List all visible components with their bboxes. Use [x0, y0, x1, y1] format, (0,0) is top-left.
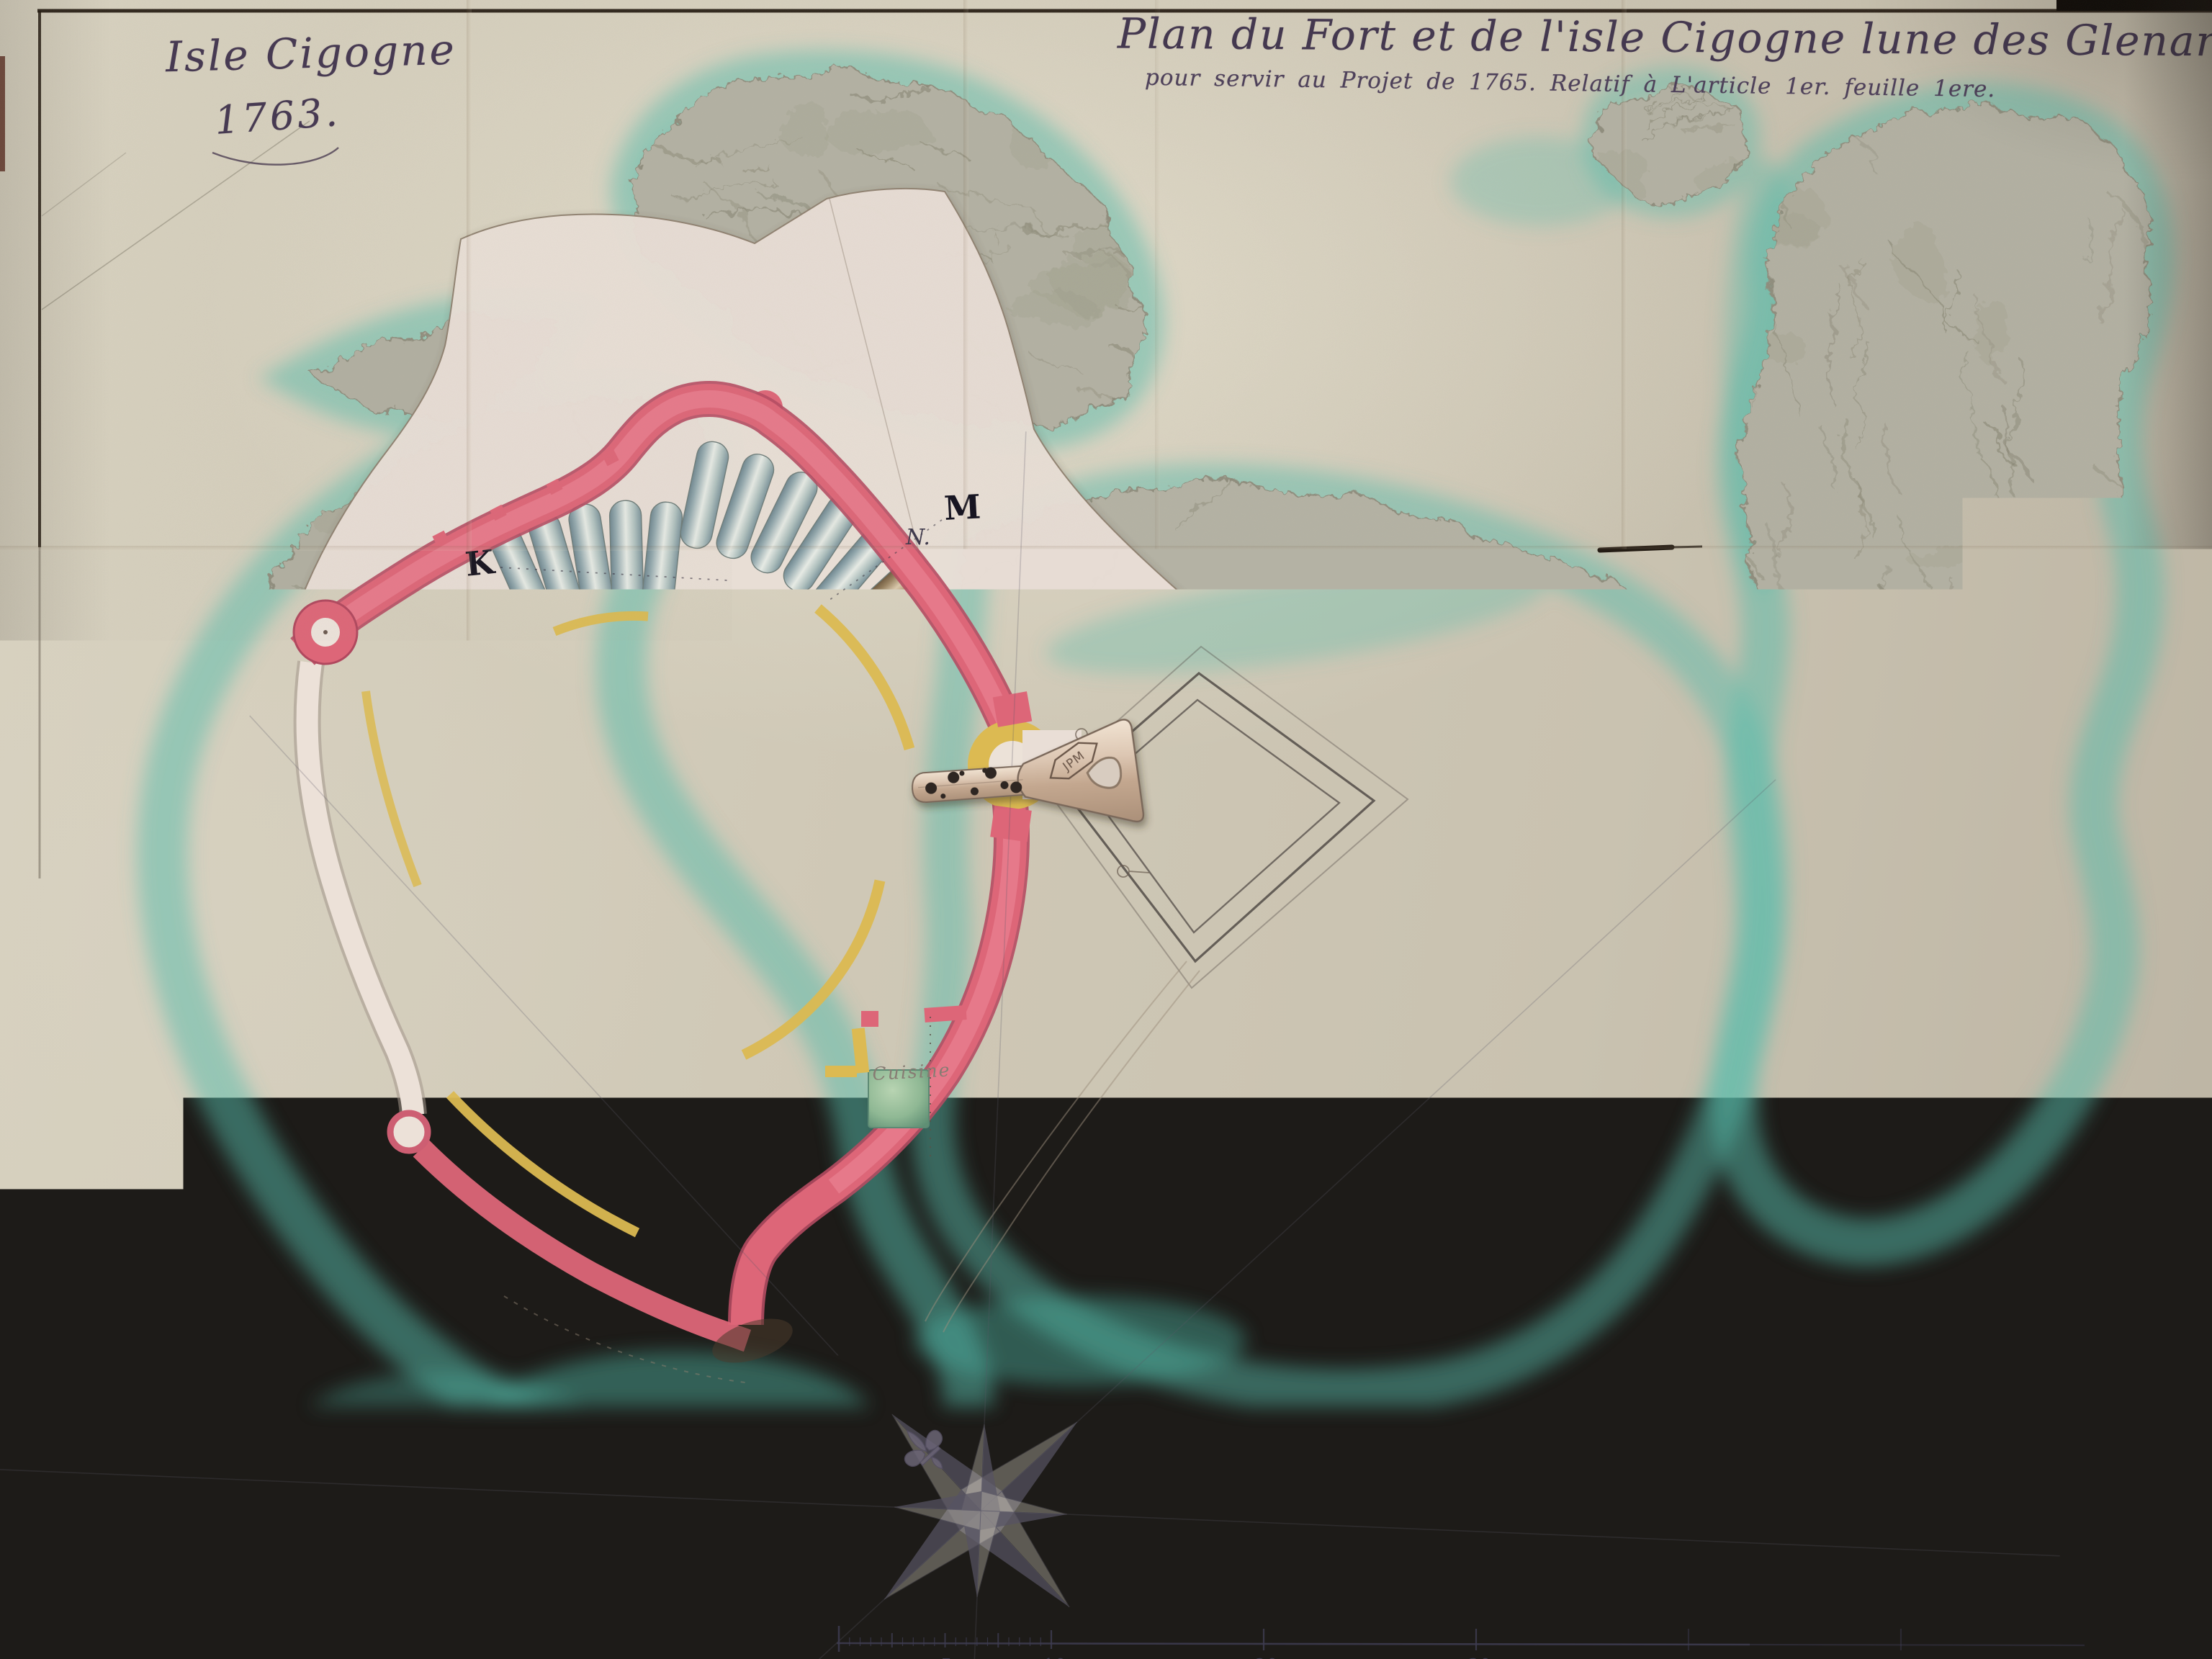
paper-grain	[0, 0, 2212, 1659]
corner-title: Isle Cigogne	[165, 25, 457, 82]
scale-label: Echelle	[1157, 1543, 1286, 1589]
antique-map-photo: K M N. Cuisine 5 10 20 30 JPM	[0, 0, 2212, 1659]
corner-year: 1763.	[213, 89, 342, 143]
map-title: Plan du Fort et de l'isle Cigogne lune d…	[1118, 9, 2212, 66]
map-drawing: K M N. Cuisine 5 10 20 30 JPM	[0, 0, 2212, 1659]
